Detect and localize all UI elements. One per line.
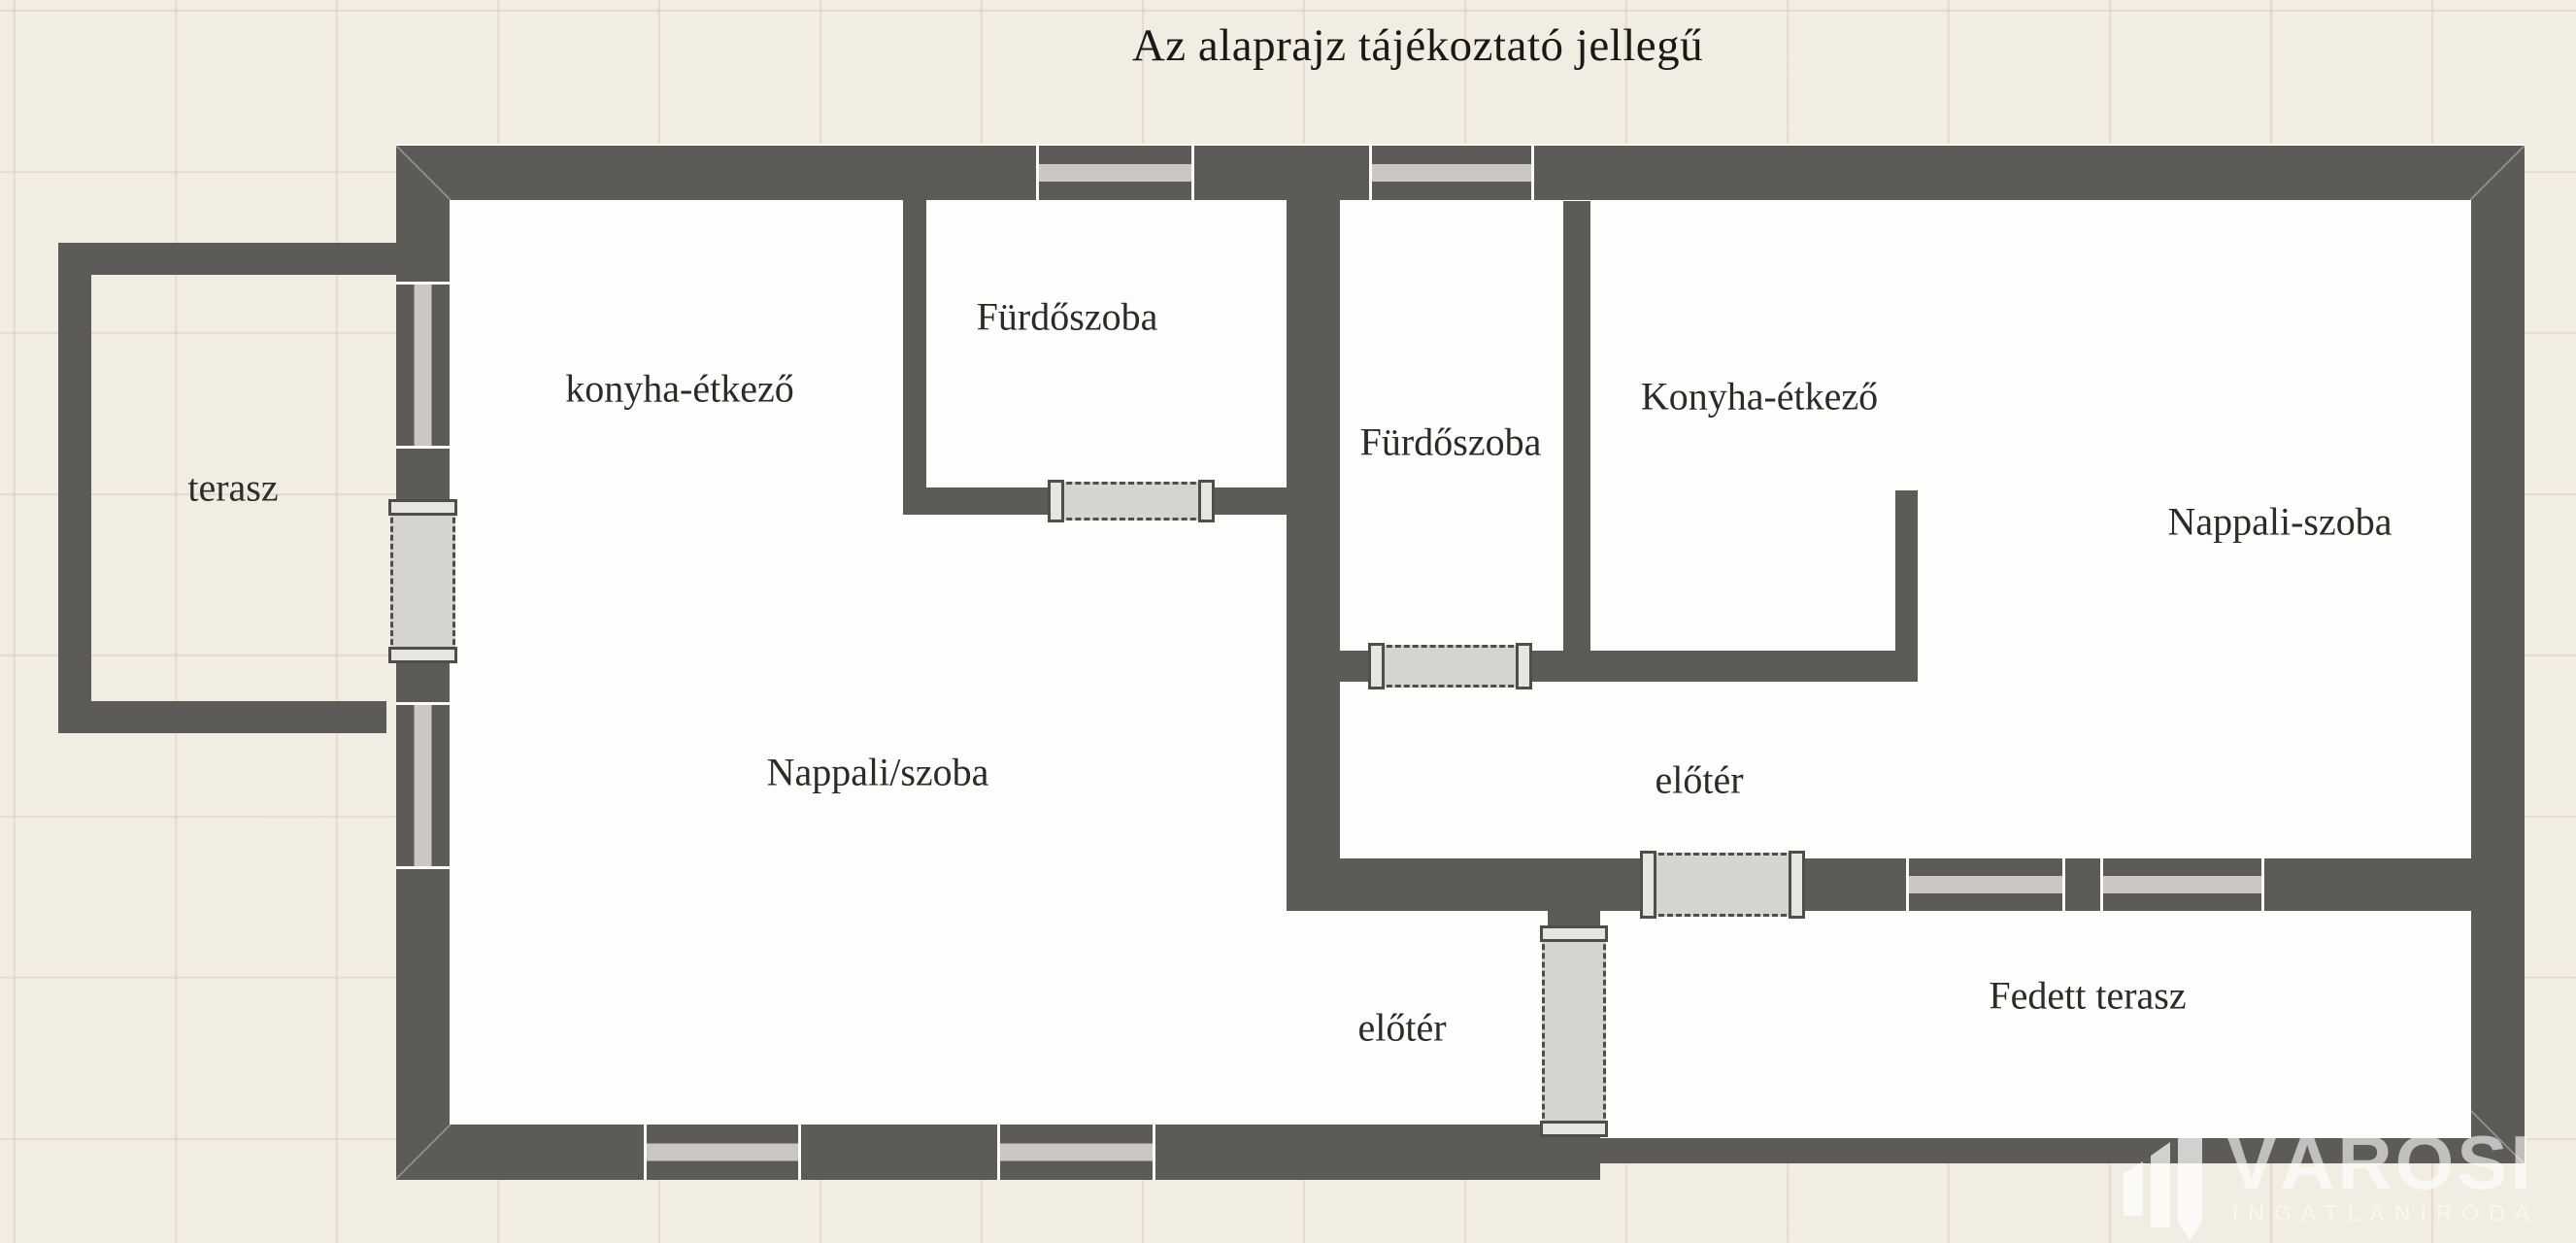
door-frame-icon bbox=[1368, 643, 1385, 689]
room-label-terasz: terasz bbox=[187, 465, 278, 511]
door-furdoszoba-right bbox=[1369, 645, 1531, 688]
window-south-left-2 bbox=[997, 1125, 1155, 1180]
window-south-right-2 bbox=[2100, 858, 2264, 911]
door-eloter-right-exterior bbox=[1641, 853, 1804, 917]
room-label-fedett-terasz: Fedett terasz bbox=[1989, 973, 2186, 1019]
room-label-nappali-szoba-right: Nappali-szoba bbox=[2167, 499, 2392, 545]
window-south-right-1 bbox=[1906, 858, 2065, 911]
wall-terasz-left bbox=[58, 243, 91, 733]
watermark-logo-icon bbox=[2178, 1124, 2202, 1240]
door-frame-icon bbox=[1516, 643, 1532, 689]
door-west-terasz bbox=[390, 500, 455, 662]
page-title: Az alaprajz tájékoztató jellegű bbox=[1078, 19, 1757, 72]
door-frame-icon bbox=[1540, 925, 1608, 942]
watermark-logo-icon bbox=[2124, 1161, 2143, 1216]
wall-furdoszoba-left-west bbox=[903, 199, 926, 515]
door-frame-icon bbox=[1789, 851, 1805, 919]
watermark-tagline: INGATLANIRODA bbox=[2232, 1200, 2576, 1226]
room-label-nappali-szoba-left: Nappali/szoba bbox=[767, 750, 989, 795]
wall-divider-dwellings bbox=[1287, 146, 1340, 911]
door-furdoszoba-left bbox=[1049, 482, 1214, 521]
door-frame-icon bbox=[1198, 480, 1215, 522]
door-frame-icon bbox=[1540, 1121, 1608, 1137]
room-label-furdoszoba-right: Fürdőszoba bbox=[1360, 420, 1542, 465]
wall-east bbox=[2471, 146, 2525, 1163]
door-frame-icon bbox=[1640, 851, 1656, 919]
door-frame-icon bbox=[1048, 480, 1064, 522]
window-south-left-1 bbox=[644, 1125, 801, 1180]
window-north-furdoszoba-left bbox=[1036, 146, 1194, 200]
door-frame-icon bbox=[388, 647, 457, 663]
watermark-logo-icon bbox=[2151, 1142, 2170, 1227]
window-west-lower bbox=[396, 702, 450, 869]
room-label-furdoszoba-left: Fürdőszoba bbox=[977, 294, 1158, 340]
door-eloter-fedett-terasz bbox=[1542, 926, 1606, 1136]
room-label-eloter-right: előtér bbox=[1655, 757, 1743, 803]
wall-furdoszoba-right-east bbox=[1563, 201, 1590, 682]
wall-terasz-bottom bbox=[58, 701, 386, 733]
room-label-eloter-left: előtér bbox=[1357, 1005, 1446, 1051]
wall-stub-konyha-nappali bbox=[1895, 490, 1918, 682]
floor-plan-page: { "title": "Az alaprajz tájékoztató jell… bbox=[0, 0, 2576, 1243]
door-frame-icon bbox=[388, 499, 457, 516]
window-north-furdoszoba-right bbox=[1369, 146, 1534, 200]
room-label-konyha-etkezo-left: konyha-étkező bbox=[565, 366, 793, 412]
room-label-konyha-etkezo-right: Konyha-étkező bbox=[1641, 374, 1878, 420]
wall-terasz-top bbox=[58, 243, 396, 275]
watermark-brand: VÁROSI bbox=[2226, 1119, 2576, 1207]
window-west-upper bbox=[396, 282, 450, 449]
